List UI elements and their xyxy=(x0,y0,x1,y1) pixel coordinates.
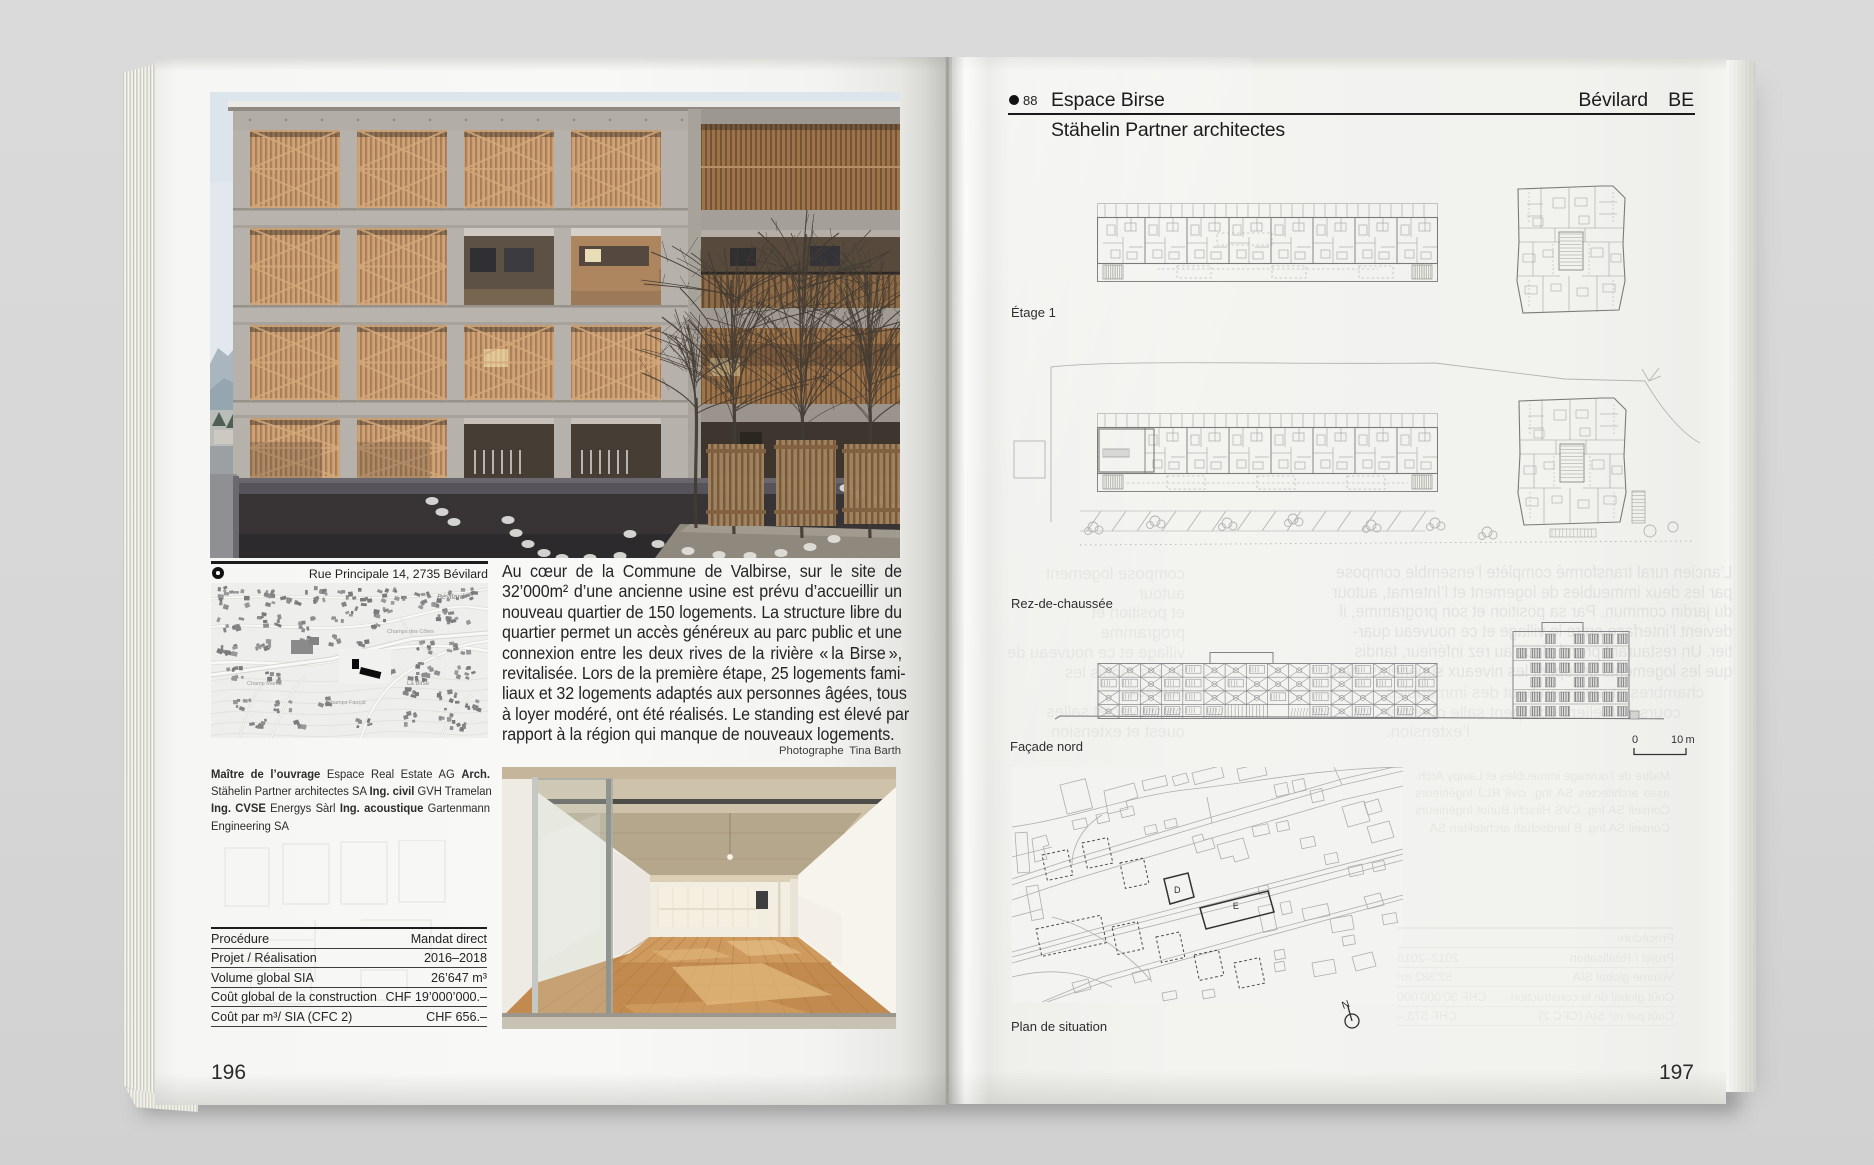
svg-text:Champ Martin: Champ Martin xyxy=(247,681,282,687)
svg-text:Champs Fauçat: Champs Fauçat xyxy=(327,700,366,706)
svg-text:E: E xyxy=(1233,901,1240,911)
svg-text:Bévilard: Bévilard xyxy=(437,592,465,601)
svg-text:Champs des Côtes: Champs des Côtes xyxy=(387,629,434,635)
svg-text:N: N xyxy=(1340,998,1351,1012)
svg-text:D: D xyxy=(1174,885,1181,895)
svg-text:La Birse: La Birse xyxy=(407,681,430,687)
